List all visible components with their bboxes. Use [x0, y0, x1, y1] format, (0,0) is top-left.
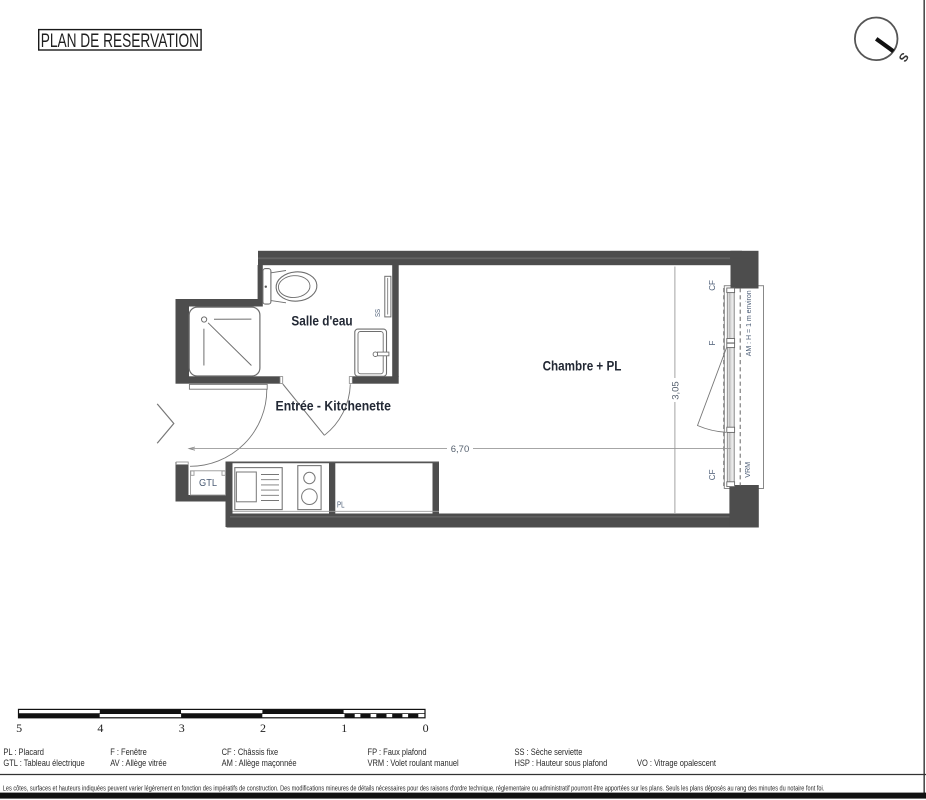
svg-text:GTL : Tableau électrique: GTL : Tableau électrique: [3, 757, 84, 768]
svg-text:Entrée - Kitchenette: Entrée - Kitchenette: [276, 398, 391, 414]
svg-text:F : Fenêtre: F : Fenêtre: [110, 746, 147, 757]
svg-text:Chambre + PL: Chambre + PL: [543, 357, 622, 373]
svg-text:VRM : Volet roulant manuel: VRM : Volet roulant manuel: [368, 757, 459, 768]
svg-text:PL : Placard: PL : Placard: [3, 746, 44, 757]
svg-text:CF: CF: [708, 280, 717, 291]
svg-text:VO : Vitrage opalescent: VO : Vitrage opalescent: [637, 757, 717, 768]
svg-text:HSP : Hauteur sous plafond: HSP : Hauteur sous plafond: [515, 757, 608, 768]
svg-text:AM : Allège maçonnée: AM : Allège maçonnée: [222, 757, 297, 768]
svg-text:Salle d'eau: Salle d'eau: [291, 312, 352, 328]
svg-text:PLAN DE RESERVATION: PLAN DE RESERVATION: [41, 29, 199, 51]
svg-text:2: 2: [260, 721, 266, 735]
svg-text:Les côtes, surfaces et hauteur: Les côtes, surfaces et hauteurs indiquée…: [3, 785, 825, 793]
svg-text:SS: SS: [374, 309, 382, 317]
svg-text:SS : Sèche serviette: SS : Sèche serviette: [515, 746, 583, 757]
svg-text:AM : H = 1 m environ: AM : H = 1 m environ: [746, 290, 753, 356]
svg-text:GTL: GTL: [199, 478, 218, 489]
svg-text:CF: CF: [708, 469, 717, 480]
svg-text:F: F: [708, 341, 717, 346]
svg-text:CF : Châssis fixe: CF : Châssis fixe: [222, 746, 279, 757]
svg-text:PL: PL: [337, 501, 345, 510]
svg-text:4: 4: [97, 721, 103, 735]
svg-text:0: 0: [423, 721, 429, 735]
svg-text:AV : Allège vitrée: AV : Allège vitrée: [110, 757, 167, 768]
svg-text:FP : Faux plafond: FP : Faux plafond: [368, 746, 427, 757]
svg-text:6,70: 6,70: [451, 444, 470, 455]
svg-text:VRM: VRM: [743, 462, 752, 478]
svg-text:5: 5: [16, 721, 22, 735]
svg-text:1: 1: [341, 721, 347, 735]
svg-text:3: 3: [179, 721, 185, 735]
svg-text:3,05: 3,05: [670, 381, 681, 400]
